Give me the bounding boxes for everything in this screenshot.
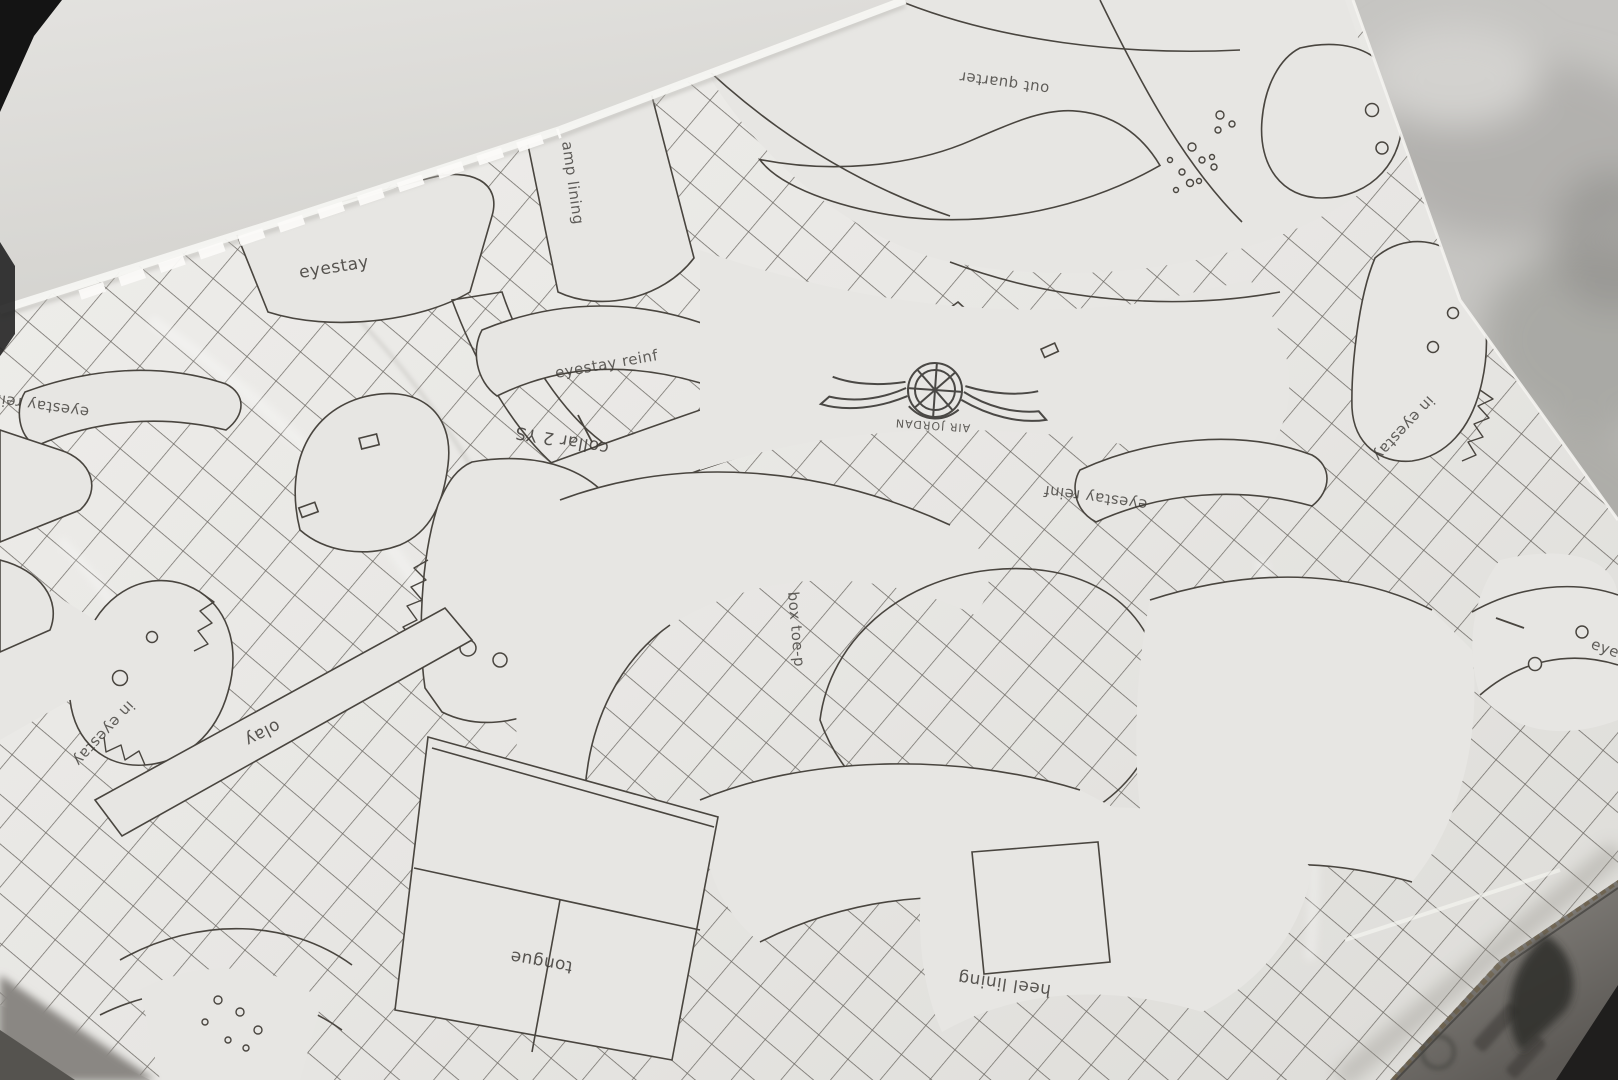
shoebox-tissue-paper-photo: eyestay amp lining eyestay reinf collar … [0,0,1618,1080]
photo-canvas: eyestay amp lining eyestay reinf collar … [0,0,1618,1080]
piece-right-edge: eye [1472,553,1618,731]
